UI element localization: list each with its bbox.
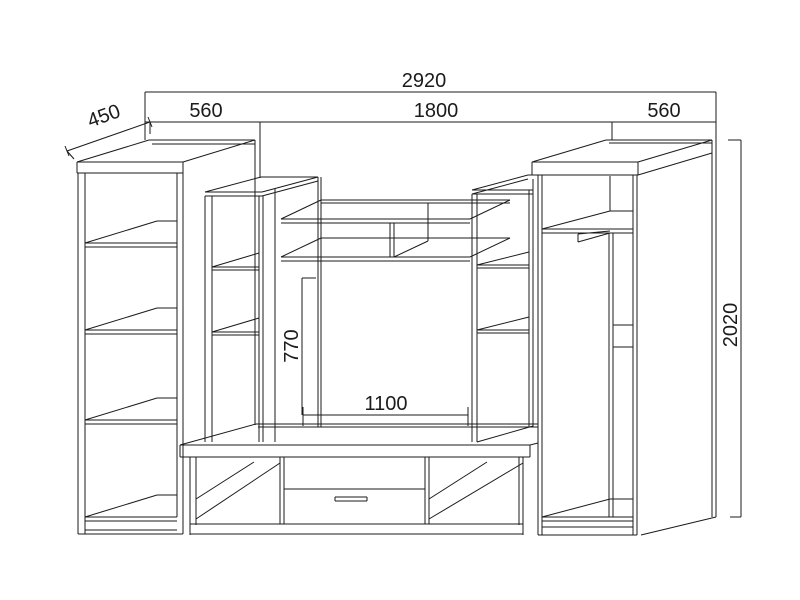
dim-label-niche-width: 1100 — [364, 393, 407, 415]
dim-label-total-width: 2920 — [402, 70, 447, 92]
wardrobe — [532, 140, 716, 535]
drawer — [284, 489, 425, 501]
dim-label-depth: 450 — [85, 100, 124, 132]
niche-shelves — [281, 200, 510, 261]
left-mid-cabinet — [205, 177, 321, 442]
dim-label-right-width: 560 — [647, 100, 680, 122]
dim-label-niche-height: 770 — [281, 329, 303, 362]
dim-label-center-width: 1800 — [414, 100, 459, 122]
tv-stand — [180, 424, 538, 535]
dim-label-left-width: 560 — [189, 100, 222, 122]
right-mid-cabinet — [472, 175, 538, 442]
dimension-annotations: 2920 560 1800 560 450 770 1100 2020 — [65, 70, 742, 517]
left-bookcase — [77, 140, 255, 534]
furniture-technical-drawing: 2920 560 1800 560 450 770 1100 2020 — [0, 0, 800, 600]
dim-label-total-height: 2020 — [720, 303, 742, 348]
drawing-canvas: 2920 560 1800 560 450 770 1100 2020 — [0, 0, 800, 600]
